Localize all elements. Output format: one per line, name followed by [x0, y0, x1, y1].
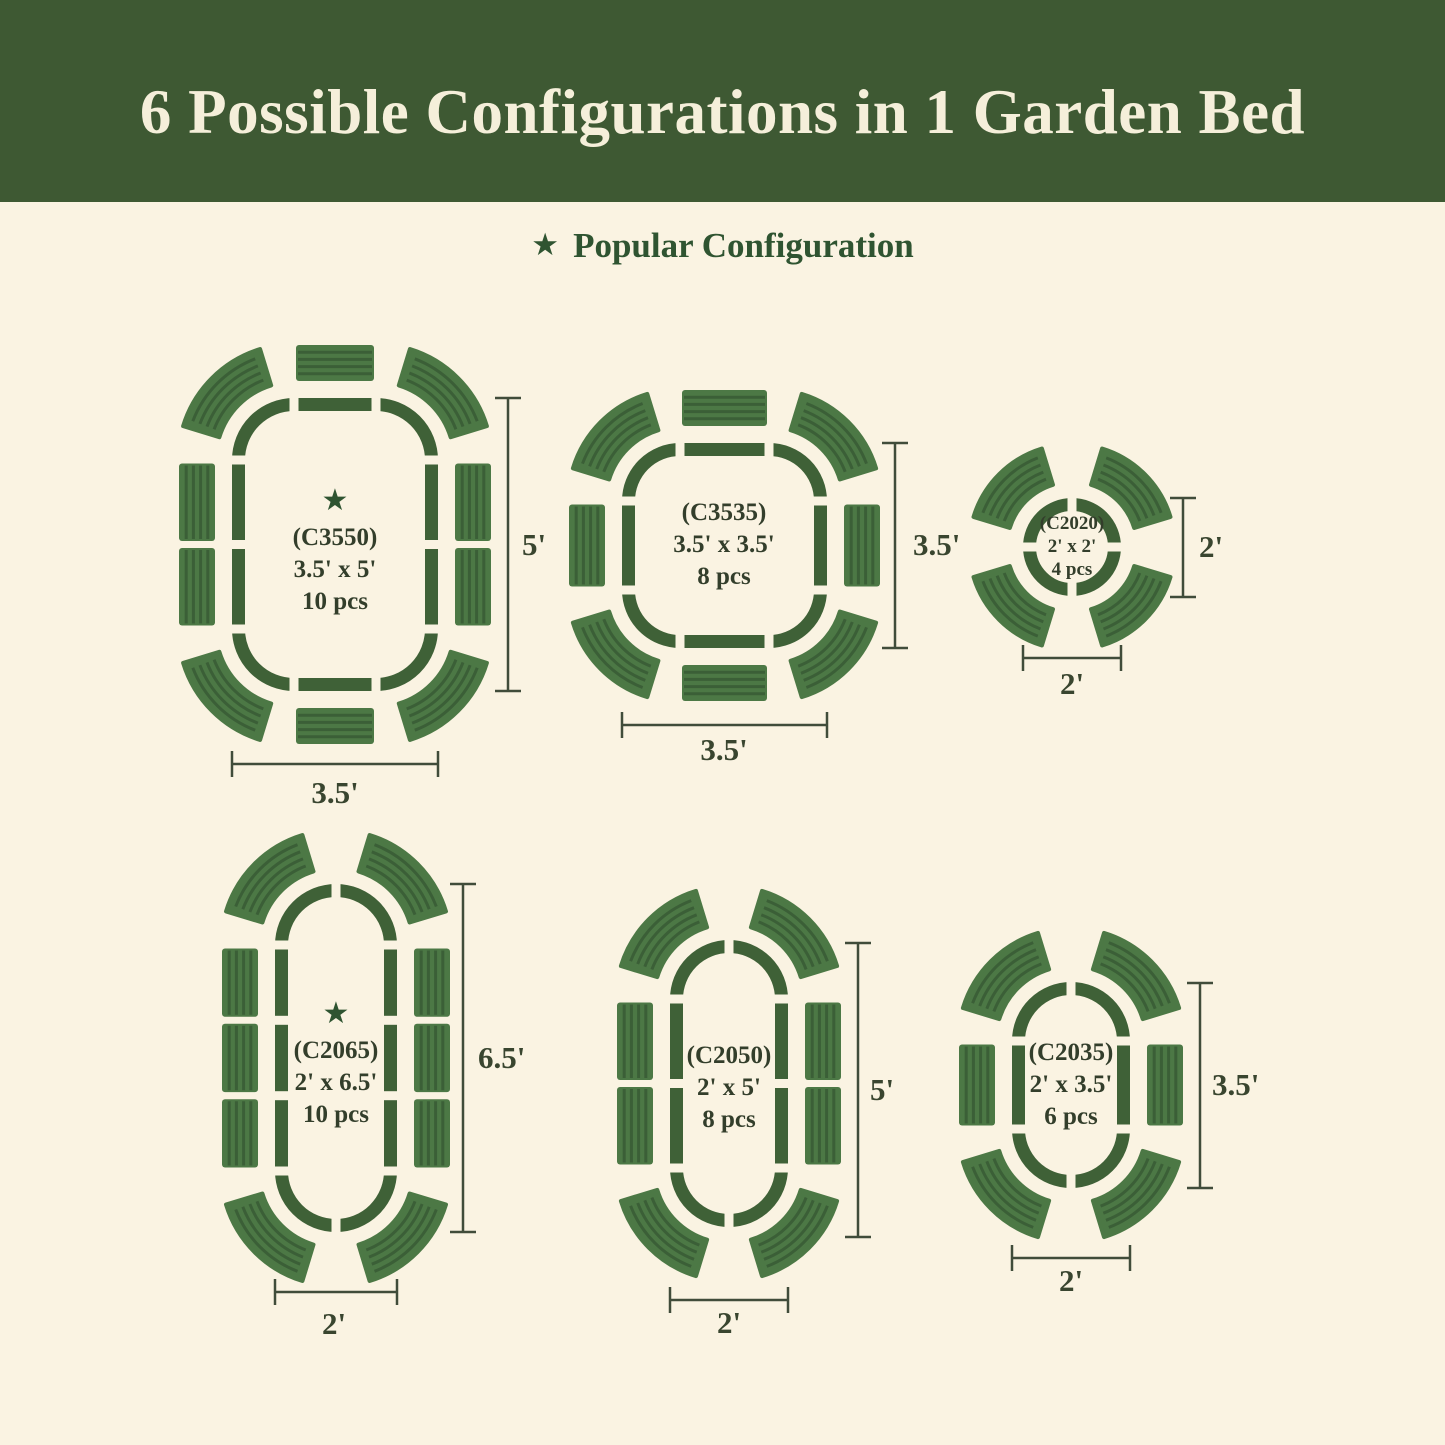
config-pieces: 8 pcs [702, 1106, 755, 1133]
config-pieces: 8 pcs [697, 563, 750, 590]
config-code: (C2065) [294, 1036, 379, 1063]
config-code: (C2035) [1029, 1039, 1114, 1066]
config-c3535-label: (C3535) 3.5' x 3.5' 8 pcs [673, 497, 774, 593]
config-code: (C2020) [1040, 513, 1104, 534]
configuration-diagrams [0, 0, 1445, 1445]
infographic-canvas: 6 Possible Configurations in 1 Garden Be… [0, 0, 1445, 1445]
page-title: 6 Possible Configurations in 1 Garden Be… [140, 54, 1305, 149]
legend: ★Popular Configuration [0, 226, 1445, 266]
star-icon: ★ [294, 998, 379, 1030]
config-code: (C3550) [293, 523, 378, 550]
title-banner: 6 Possible Configurations in 1 Garden Be… [0, 0, 1445, 202]
dim-width-label: 2' [322, 1306, 346, 1342]
config-c2050-label: (C2050) 2' x 5' 8 pcs [687, 1040, 772, 1136]
config-c2020-label: (C2020) 2' x 2' 4 pcs [1040, 512, 1104, 582]
dim-height-label: 3.5' [913, 527, 960, 563]
dim-width-label: 2' [717, 1305, 741, 1341]
config-size: 2' x 3.5' [1030, 1071, 1113, 1098]
config-pieces: 10 pcs [302, 587, 368, 614]
dim-width-label: 3.5' [700, 732, 747, 768]
dim-height-label: 5' [522, 527, 546, 563]
config-c3550-label: ★ (C3550) 3.5' x 5' 10 pcs [293, 485, 378, 618]
config-size: 2' x 2' [1048, 536, 1097, 557]
dim-height-label: 3.5' [1212, 1067, 1259, 1103]
legend-label: Popular Configuration [573, 226, 914, 265]
config-c2035-label: (C2035) 2' x 3.5' 6 pcs [1029, 1037, 1114, 1133]
config-size: 3.5' x 5' [294, 555, 377, 582]
config-size: 2' x 5' [697, 1074, 761, 1101]
dim-height-label: 2' [1199, 529, 1223, 565]
star-icon: ★ [531, 227, 559, 263]
config-code: (C3535) [682, 499, 767, 526]
config-pieces: 10 pcs [303, 1100, 369, 1127]
dim-width-label: 3.5' [311, 775, 358, 811]
dim-width-label: 2' [1060, 666, 1084, 702]
config-c2065-label: ★ (C2065) 2' x 6.5' 10 pcs [294, 998, 379, 1131]
dim-height-label: 5' [870, 1072, 894, 1108]
config-pieces: 6 pcs [1044, 1103, 1097, 1130]
dim-height-label: 6.5' [478, 1040, 525, 1076]
config-size: 2' x 6.5' [295, 1068, 378, 1095]
dim-width-label: 2' [1059, 1263, 1083, 1299]
star-icon: ★ [293, 485, 378, 517]
config-code: (C2050) [687, 1042, 772, 1069]
config-pieces: 4 pcs [1052, 560, 1093, 581]
config-size: 3.5' x 3.5' [673, 531, 774, 558]
